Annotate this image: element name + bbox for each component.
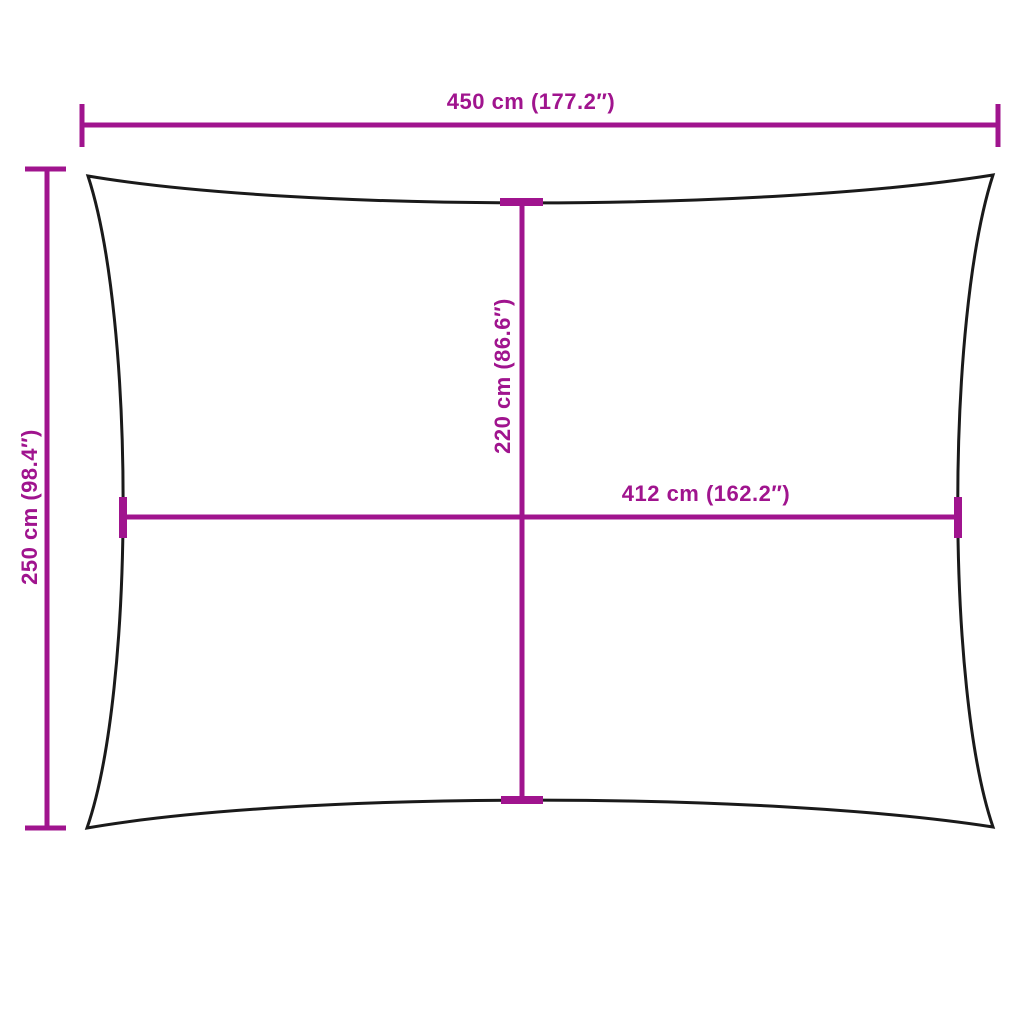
left-height-label: 250 cm (98.4″): [17, 429, 43, 585]
top-width-label: 450 cm (177.2″): [447, 89, 615, 115]
center-width-label: 412 cm (162.2″): [622, 481, 790, 507]
center-height-label: 220 cm (86.6″): [490, 298, 516, 454]
dimension-diagram: 450 cm (177.2″) 250 cm (98.4″) 220 cm (8…: [0, 0, 1024, 1024]
diagram-graphics: [0, 0, 1024, 1024]
sail-outline: [87, 175, 993, 828]
